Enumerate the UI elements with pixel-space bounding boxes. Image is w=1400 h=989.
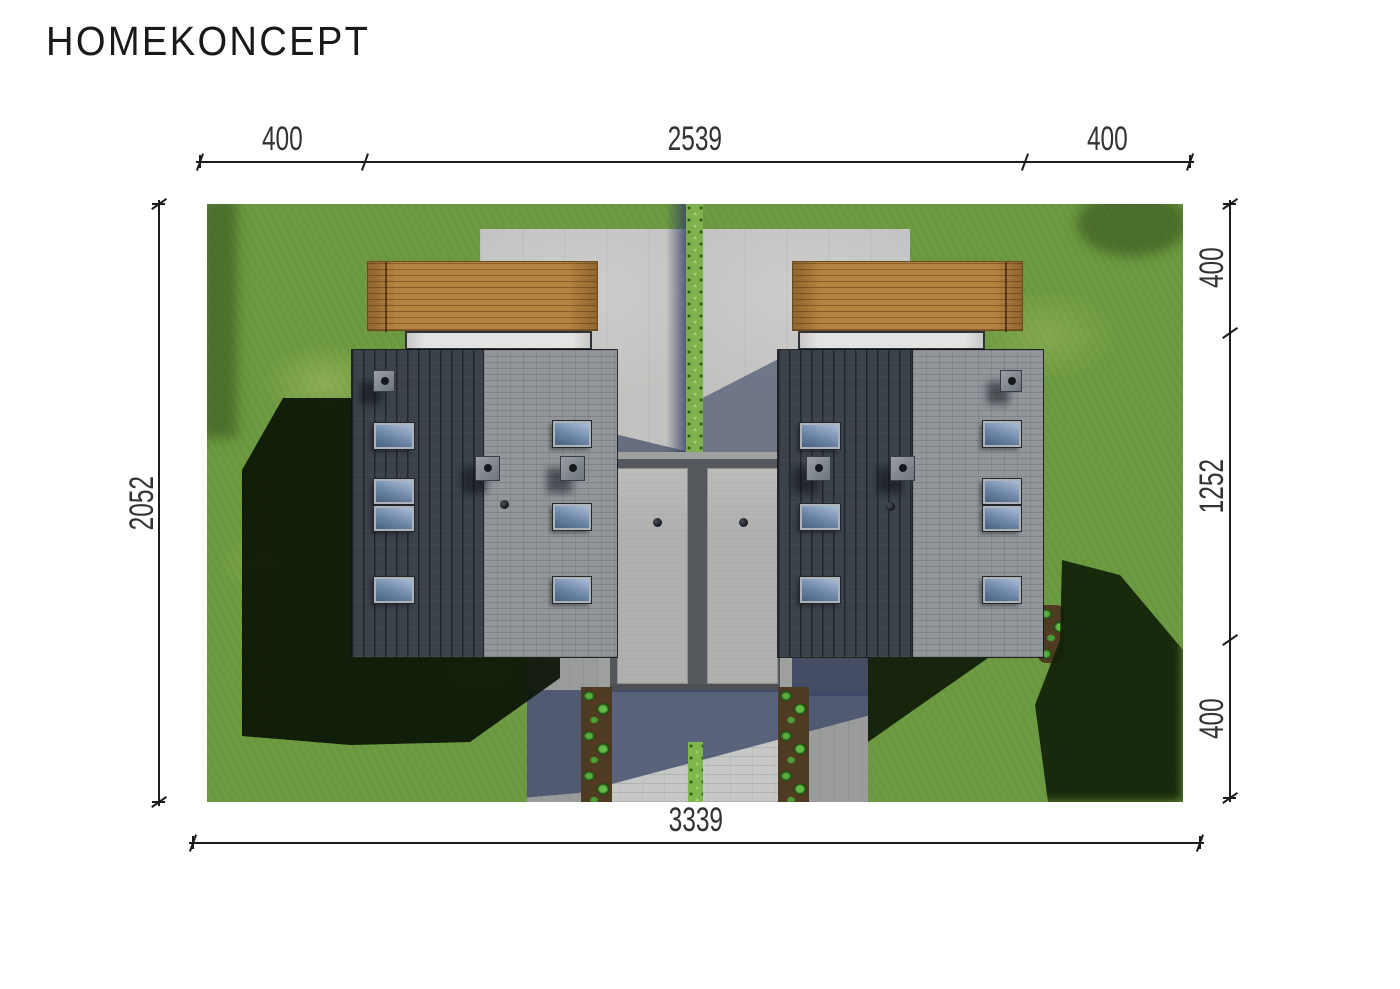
dim-label-top-middle: 2539 [625,118,765,160]
house-right [778,350,1043,657]
dim-label-top-right: 400 [1037,118,1177,160]
dimension-line [196,161,1194,163]
garage-roof-left [617,468,688,684]
terrace-band-left [405,331,592,350]
tree-shadow [207,204,237,438]
deck-joint [1005,262,1007,332]
skylight [374,479,414,504]
chimney-vent [1000,370,1022,392]
chimney-vent [373,370,395,392]
roof-panel-dark [352,350,483,657]
skylight [374,423,414,449]
skylight [800,504,840,530]
roof-vent [653,518,662,527]
dim-label-bottom-total: 3339 [626,799,766,841]
hedge [686,204,703,462]
roof-vent [500,500,509,509]
skylight [800,423,840,449]
house-left [352,350,617,657]
chimney-vent [890,456,915,481]
plant-border-left [581,687,612,802]
skylight [553,421,591,447]
skylight [374,577,414,603]
deck-right [792,261,1023,331]
deck-joint [385,262,387,332]
chimney-vent [806,456,831,481]
skylight [800,577,840,603]
site-aerial-view [207,204,1183,802]
walkway-hedge [688,742,703,802]
dim-label-right-middle: 1252 [1191,416,1233,556]
roof-panel-light [912,350,1043,657]
brand-logo: HOMEKONCEPT [46,18,370,65]
skylight [374,506,414,531]
deck-left [367,261,598,331]
dim-label-right-bottom: 400 [1191,649,1233,789]
plant-border-right [778,687,809,802]
skylight [983,506,1021,531]
roof-vent [739,518,748,527]
skylight [983,577,1021,603]
skylight [983,421,1021,447]
skylight [553,504,591,530]
roof-vent [886,502,895,511]
skylight [553,577,591,603]
chimney-vent [560,456,585,481]
dim-label-left-total: 2052 [121,433,163,573]
chimney-vent [475,456,500,481]
dim-label-top-left: 400 [212,118,352,160]
skylight [983,479,1021,504]
plan-sheet: HOMEKONCEPT 400 2539 400 3339 2052 [0,0,1400,989]
terrace-band-right [798,331,985,350]
hedge-shadow [666,204,686,462]
dim-label-right-top: 400 [1191,198,1233,338]
dimension-line [189,842,1204,844]
garage-roof-right [707,468,778,684]
